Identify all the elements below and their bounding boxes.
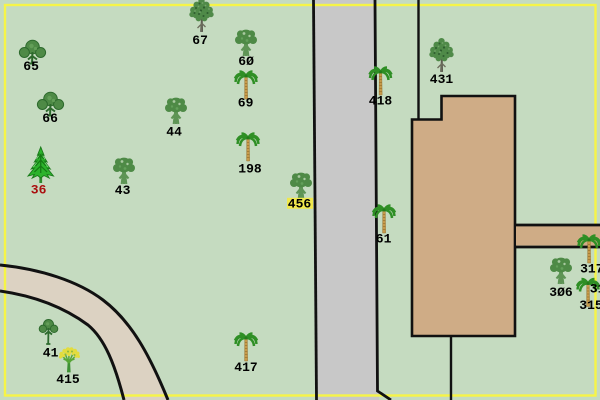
svg-text:315: 315: [579, 298, 600, 313]
svg-text:69: 69: [238, 96, 254, 111]
svg-text:67: 67: [192, 33, 208, 48]
svg-text:198: 198: [238, 161, 262, 176]
svg-text:61: 61: [376, 232, 392, 247]
svg-text:3Ø6: 3Ø6: [549, 285, 573, 300]
svg-text:43: 43: [115, 183, 131, 198]
svg-text:44: 44: [166, 125, 182, 140]
svg-text:456: 456: [288, 197, 312, 212]
svg-text:6Ø: 6Ø: [238, 54, 254, 69]
svg-text:65: 65: [23, 59, 39, 74]
svg-text:418: 418: [369, 94, 393, 109]
svg-text:417: 417: [234, 360, 257, 375]
svg-text:36: 36: [31, 183, 47, 198]
svg-text:317: 317: [580, 262, 600, 277]
svg-text:431: 431: [430, 72, 454, 87]
svg-text:41: 41: [43, 346, 59, 361]
svg-text:31: 31: [590, 281, 600, 296]
svg-text:415: 415: [56, 372, 80, 387]
svg-text:66: 66: [42, 111, 58, 126]
